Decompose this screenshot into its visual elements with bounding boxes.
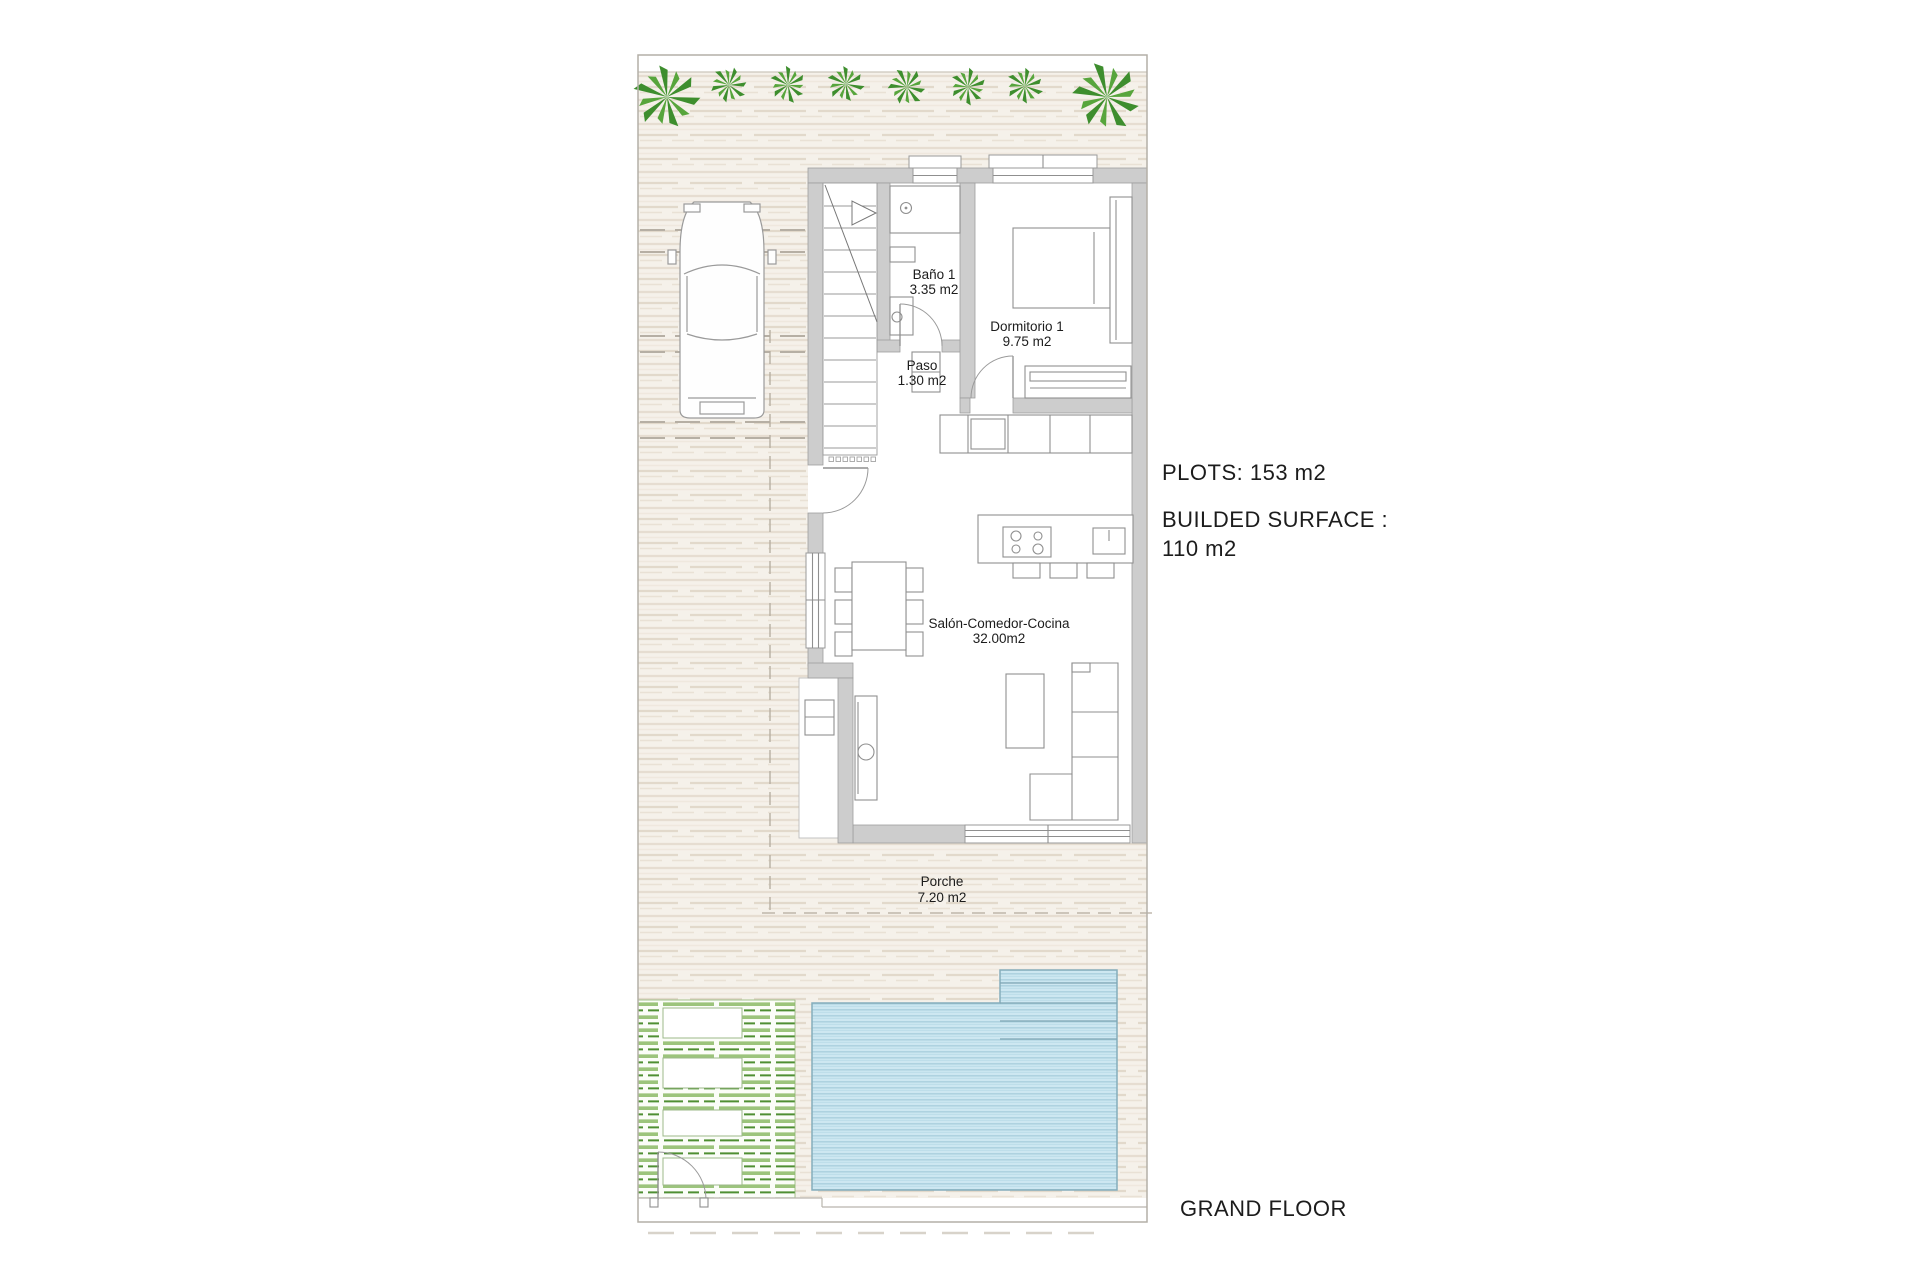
chair: [835, 600, 852, 624]
planter: [663, 1110, 742, 1136]
chair: [906, 632, 923, 656]
annotations: PLOTS: 153 m2 BUILDED SURFACE : 110 m2 G…: [1162, 460, 1388, 1221]
room-label-living-kitchen: Salón-Comedor-Cocina: [928, 616, 1070, 631]
bed-icon: [1013, 228, 1110, 308]
room-label-porch: Porche: [921, 874, 964, 889]
built-surface-label: BUILDED SURFACE :: [1162, 507, 1388, 532]
chair: [906, 568, 923, 592]
dining-table-icon: [852, 562, 906, 650]
room-label-hallway: Paso: [907, 358, 938, 373]
coffee-table: [1006, 674, 1044, 748]
room-area-bathroom: 3.35 m2: [910, 282, 959, 297]
window-sill: [909, 156, 961, 168]
chair: [835, 568, 852, 592]
chair: [835, 632, 852, 656]
room-label-bathroom: Baño 1: [913, 267, 956, 282]
stool: [1013, 563, 1040, 578]
cistern: [890, 247, 915, 262]
stool: [1050, 563, 1077, 578]
room-area-living-kitchen: 32.00m2: [973, 631, 1026, 646]
chair: [906, 600, 923, 624]
stool: [1087, 563, 1114, 578]
room-label-bedroom: Dormitorio 1: [990, 319, 1064, 334]
kitchen-counter: [940, 415, 1132, 453]
built-surface-value: 110 m2: [1162, 536, 1237, 561]
entrance-threshold: [829, 457, 876, 462]
floor-plan-page: Baño 1 3.35 m2 Dormitorio 1 9.75 m2 Paso…: [0, 0, 1920, 1280]
lawn: [638, 1000, 795, 1200]
gate-post: [650, 1198, 658, 1207]
room-area-hallway: 1.30 m2: [898, 373, 947, 388]
car-icon: [668, 202, 776, 418]
planter: [663, 1008, 742, 1038]
planter: [663, 1058, 742, 1088]
car-mirror: [668, 250, 676, 264]
closet: [1025, 366, 1131, 398]
floor-plan-drawing: Baño 1 3.35 m2 Dormitorio 1 9.75 m2 Paso…: [0, 0, 1920, 1280]
stairs: [823, 183, 877, 455]
side-niche: [799, 678, 840, 838]
car-mirror: [768, 250, 776, 264]
sidewalk: [638, 1198, 1147, 1222]
kitchen-island-icon: [978, 515, 1133, 563]
dining-area: [835, 562, 923, 656]
room-area-bedroom: 9.75 m2: [1003, 334, 1052, 349]
plot-top-strip: [638, 55, 1147, 72]
pool: [812, 970, 1117, 1190]
gate-post: [700, 1198, 708, 1207]
plots-area-label: PLOTS: 153 m2: [1162, 460, 1326, 485]
room-area-porch: 7.20 m2: [918, 890, 967, 905]
wardrobe: [1110, 197, 1132, 343]
floor-title: GRAND FLOOR: [1180, 1196, 1347, 1221]
